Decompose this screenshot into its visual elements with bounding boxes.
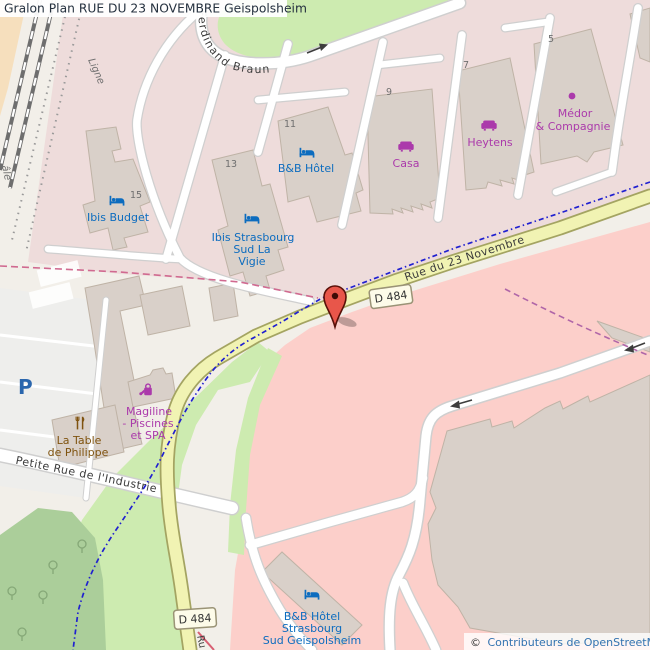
house-number-5: 5 — [548, 34, 554, 45]
house-number-9: 9 — [386, 87, 392, 98]
building-casa — [367, 89, 440, 214]
house-number-13: 13 — [225, 159, 237, 170]
poi-label-ibis-budget: Ibis Budget — [87, 211, 150, 224]
house-number-7: 7 — [463, 60, 469, 71]
shop-dot-icon — [569, 93, 576, 100]
building-annex — [140, 286, 190, 335]
poi-label-bb-geis-3: Sud Geispolsheim — [263, 634, 362, 647]
road-shield-d484-text: D 484 — [178, 611, 212, 626]
map-container[interactable]: Rue du 23 Novembre Ferdinand Braun Petit… — [0, 0, 650, 650]
poi-label-ibis-vigie-3: Vigie — [238, 255, 265, 268]
poi-label-heytens: Heytens — [467, 136, 513, 149]
house-number-15: 15 — [130, 190, 142, 201]
poi-label-medor-2: & Compagnie — [536, 120, 611, 133]
poi-label-casa: Casa — [393, 157, 420, 170]
house-number-11: 11 — [284, 119, 296, 130]
attribution: © Contributeurs de OpenStreetMap — [464, 633, 650, 650]
attribution-link[interactable]: Contributeurs de OpenStreetMap — [488, 636, 650, 649]
map-canvas[interactable]: Rue du 23 Novembre Ferdinand Braun Petit… — [0, 0, 650, 650]
attribution-text: © Contributeurs de OpenStreetMap — [470, 636, 650, 649]
title-bar: Gralon Plan RUE DU 23 NOVEMBRE Geispolsh… — [0, 0, 307, 17]
poi-label-magiline-3: et SPA — [130, 429, 165, 442]
road-shield-d484: D 484 — [173, 608, 216, 630]
poi-label-table-2: de Philippe — [48, 446, 109, 459]
poi-label-medor-1: Médor — [558, 107, 593, 120]
parking-icon: P — [18, 375, 33, 399]
marker-pin-dot — [332, 293, 338, 299]
page-title: Gralon Plan RUE DU 23 NOVEMBRE Geispolsh… — [4, 2, 307, 16]
copyright-symbol: © — [470, 636, 481, 649]
building-small-square — [209, 283, 238, 321]
poi-label-bb-hotel: B&B Hôtel — [278, 162, 334, 175]
